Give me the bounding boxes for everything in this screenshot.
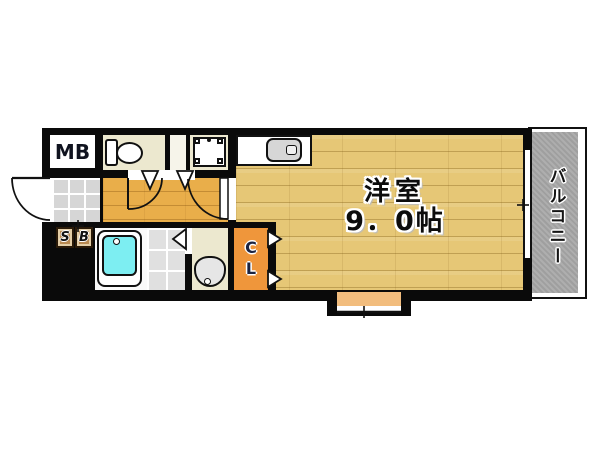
bathtub-faucet-icon — [113, 238, 120, 245]
room-name-label: 洋室 — [320, 178, 470, 206]
bay-window-glass — [337, 306, 401, 312]
kitchen-sink-drain — [286, 145, 297, 155]
balcony-label: バルコニー — [541, 142, 571, 292]
pan-corner-icon — [194, 158, 200, 164]
shoe-box-b: B — [75, 227, 93, 248]
pan-faucet-icon — [207, 138, 211, 142]
bathroom-tile-floor — [147, 228, 185, 290]
balcony-window — [523, 150, 532, 258]
washbasin-faucet-icon — [204, 278, 211, 285]
meter-box-room: MB — [50, 135, 95, 168]
shoe-box-s: S — [56, 227, 74, 248]
pan-corner-icon — [217, 158, 223, 164]
closet: CL — [234, 228, 268, 290]
room-size-label: 9．0帖 — [320, 206, 470, 238]
floorplan-canvas: バルコニー MB CL S B — [0, 0, 600, 450]
toilet-fixture — [116, 142, 143, 164]
pan-corner-icon — [194, 138, 200, 144]
pan-corner-icon — [217, 138, 223, 144]
storage-nook — [170, 135, 186, 170]
entrance-floor — [52, 178, 100, 222]
room-label: 洋室 9．0帖 — [320, 178, 470, 238]
closet-label: CL — [242, 238, 261, 280]
bay-window-sill — [337, 292, 401, 306]
hallway-floor — [103, 178, 228, 222]
meter-box-label: MB — [55, 140, 90, 164]
